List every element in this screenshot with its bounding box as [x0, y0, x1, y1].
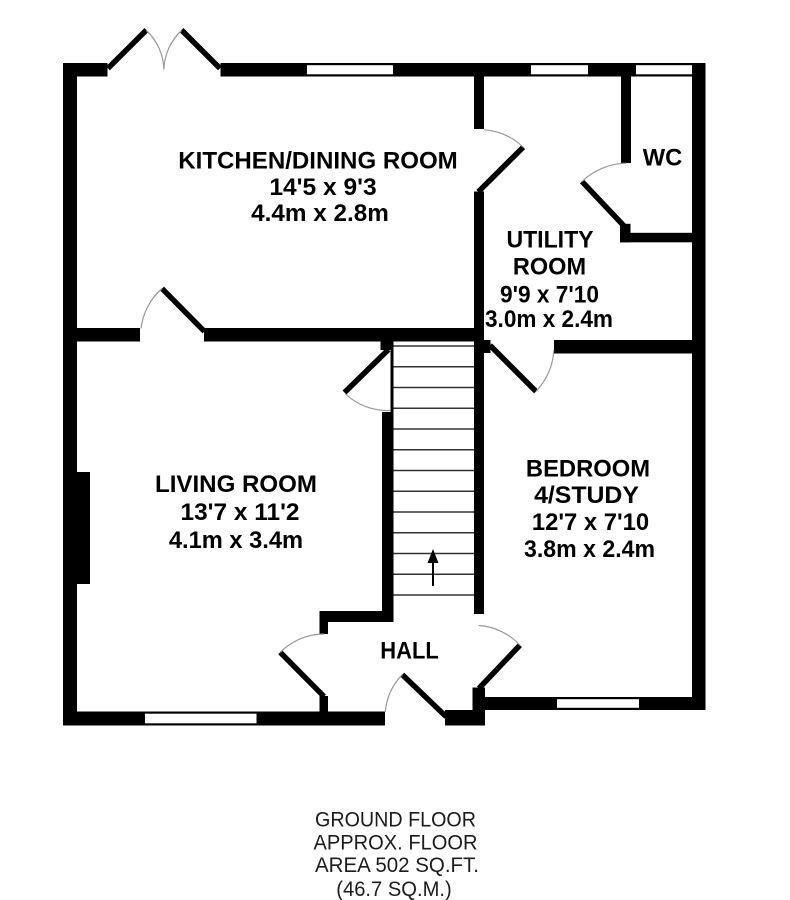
svg-text:3.8m x 2.4m: 3.8m x 2.4m	[524, 536, 655, 563]
svg-text:14'5 x 9'3: 14'5 x 9'3	[269, 174, 376, 201]
svg-text:UTILITY: UTILITY	[506, 227, 593, 254]
svg-text:4/STUDY: 4/STUDY	[534, 482, 639, 509]
svg-text:ROOM: ROOM	[513, 254, 586, 281]
svg-text:LIVING ROOM: LIVING ROOM	[155, 471, 317, 498]
svg-text:13'7 x 11'2: 13'7 x 11'2	[181, 499, 300, 526]
svg-text:AREA 502 SQ.FT.: AREA 502 SQ.FT.	[315, 854, 479, 877]
svg-text:BEDROOM: BEDROOM	[526, 456, 650, 483]
svg-text:4.4m x 2.8m: 4.4m x 2.8m	[251, 200, 389, 227]
svg-text:9'9 x 7'10: 9'9 x 7'10	[500, 282, 599, 309]
svg-text:(46.7 SQ.M.): (46.7 SQ.M.)	[336, 878, 451, 900]
svg-text:HALL: HALL	[380, 638, 439, 665]
svg-text:3.0m x 2.4m: 3.0m x 2.4m	[485, 306, 613, 333]
svg-text:4.1m x 3.4m: 4.1m x 3.4m	[169, 527, 303, 554]
svg-text:GROUND FLOOR: GROUND FLOOR	[315, 809, 476, 832]
svg-text:APPROX. FLOOR: APPROX. FLOOR	[314, 832, 478, 855]
svg-text:WC: WC	[643, 145, 683, 172]
svg-text:KITCHEN/DINING ROOM: KITCHEN/DINING ROOM	[178, 148, 458, 175]
svg-text:12'7 x 7'10: 12'7 x 7'10	[532, 509, 649, 536]
